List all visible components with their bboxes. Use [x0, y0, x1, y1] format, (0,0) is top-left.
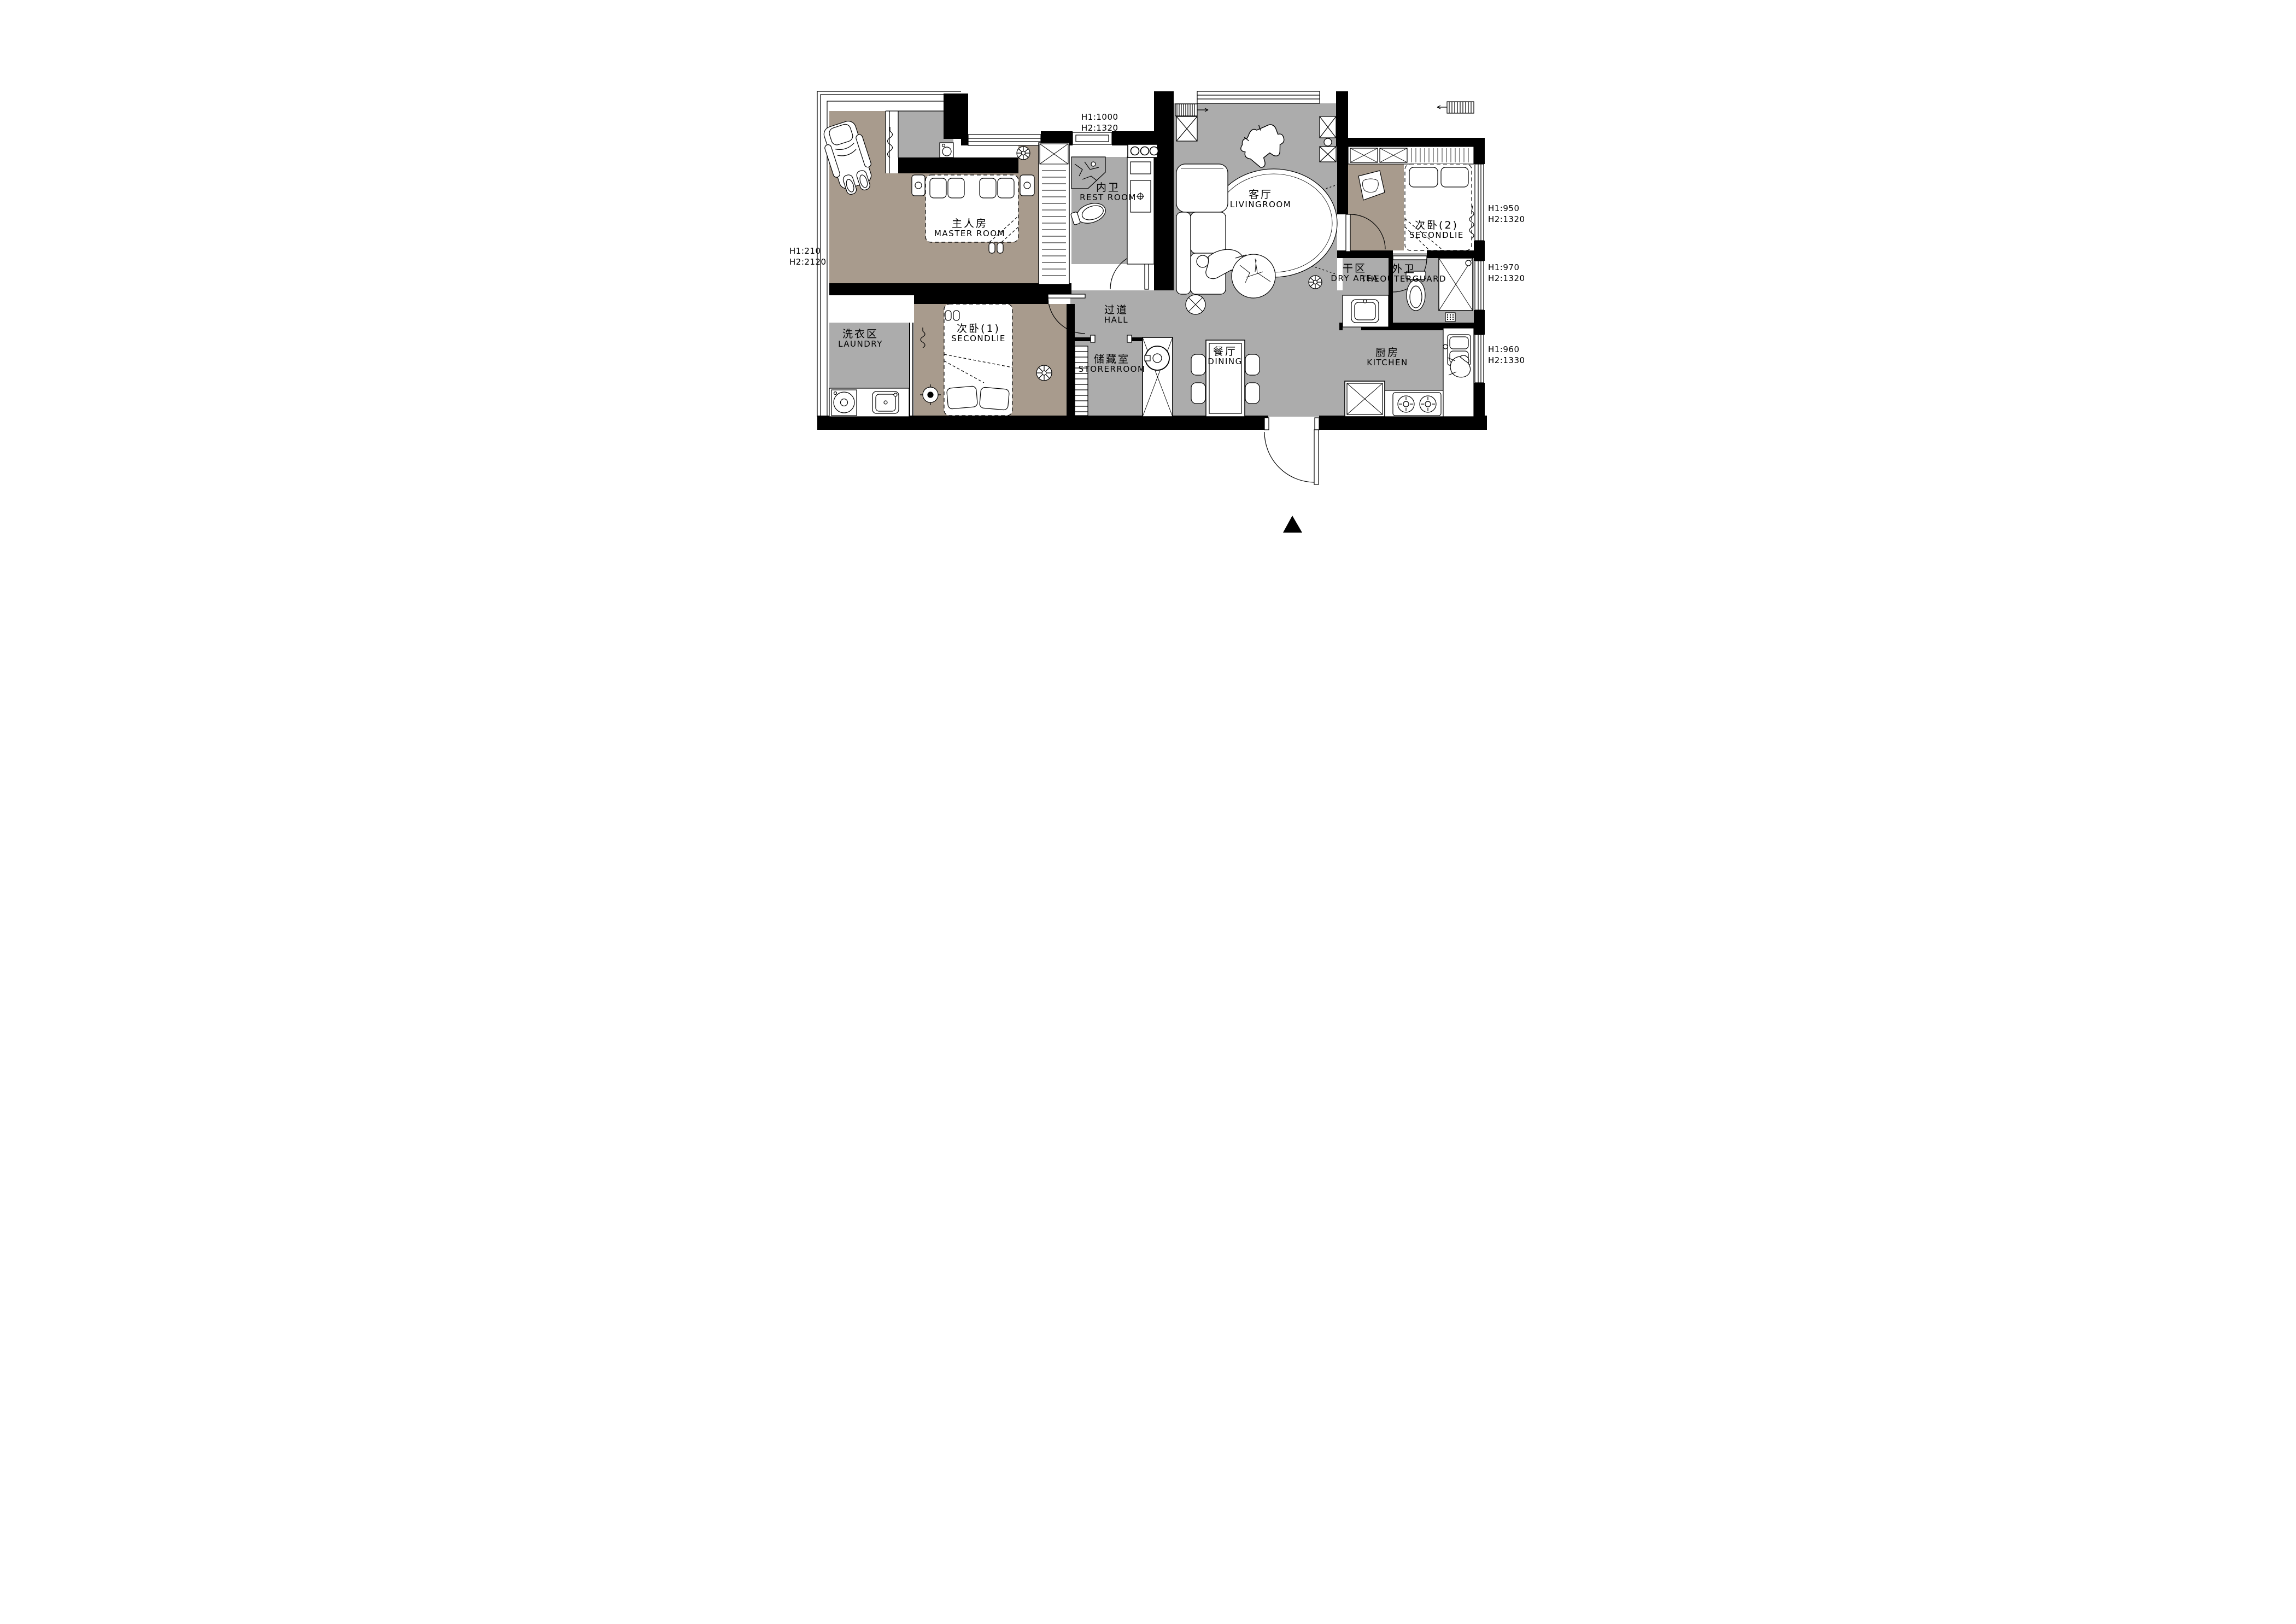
column-left [1176, 116, 1197, 141]
wardrobe-master [1039, 143, 1069, 284]
bedroom2-closet [1348, 147, 1474, 164]
dining-table [1206, 340, 1245, 417]
door-entry [1264, 418, 1319, 484]
floor-plan-drawing [765, 0, 1531, 541]
master-bed [926, 175, 1018, 242]
window-bedroom2-right [1475, 164, 1484, 241]
shower-outer [1439, 258, 1473, 311]
floor-plan: 主人房 MASTER ROOM 内卫 REST ROOM 客厅 LIVINGRO… [765, 0, 1531, 541]
curtain-box-right [1437, 102, 1474, 113]
laundry-fixtures [829, 388, 909, 417]
floor-drain [1445, 313, 1455, 322]
plant-master [1017, 147, 1030, 160]
window-outerbath-right [1475, 261, 1484, 310]
fridge [1345, 381, 1385, 417]
vanity-rest-room [1127, 157, 1154, 264]
window-kitchen-right [1475, 335, 1484, 383]
water-heater-closet [1143, 337, 1173, 417]
plant-bedroom1 [1036, 365, 1052, 381]
toilet-outer [1406, 271, 1426, 311]
bedroom2-bed [1405, 164, 1472, 250]
laundry-sink [872, 392, 899, 413]
entry-arrow [1283, 516, 1302, 533]
washing-machine [831, 390, 857, 416]
coffee-table [1232, 254, 1275, 298]
side-table [1186, 295, 1205, 314]
bedroom1-bed [944, 304, 1012, 416]
storeroom-shelves [1075, 346, 1088, 416]
window-master-top [968, 135, 1041, 145]
balcony-sink-counter [940, 143, 953, 157]
cooktop [1393, 393, 1441, 416]
radiator-balcony [888, 127, 893, 157]
window-top-h1000 [1073, 132, 1112, 144]
dry-area-vanity [1343, 295, 1389, 327]
window-living-top [1197, 91, 1320, 103]
plant-rug [1309, 276, 1322, 289]
ceiling-lights-box [1128, 144, 1158, 157]
